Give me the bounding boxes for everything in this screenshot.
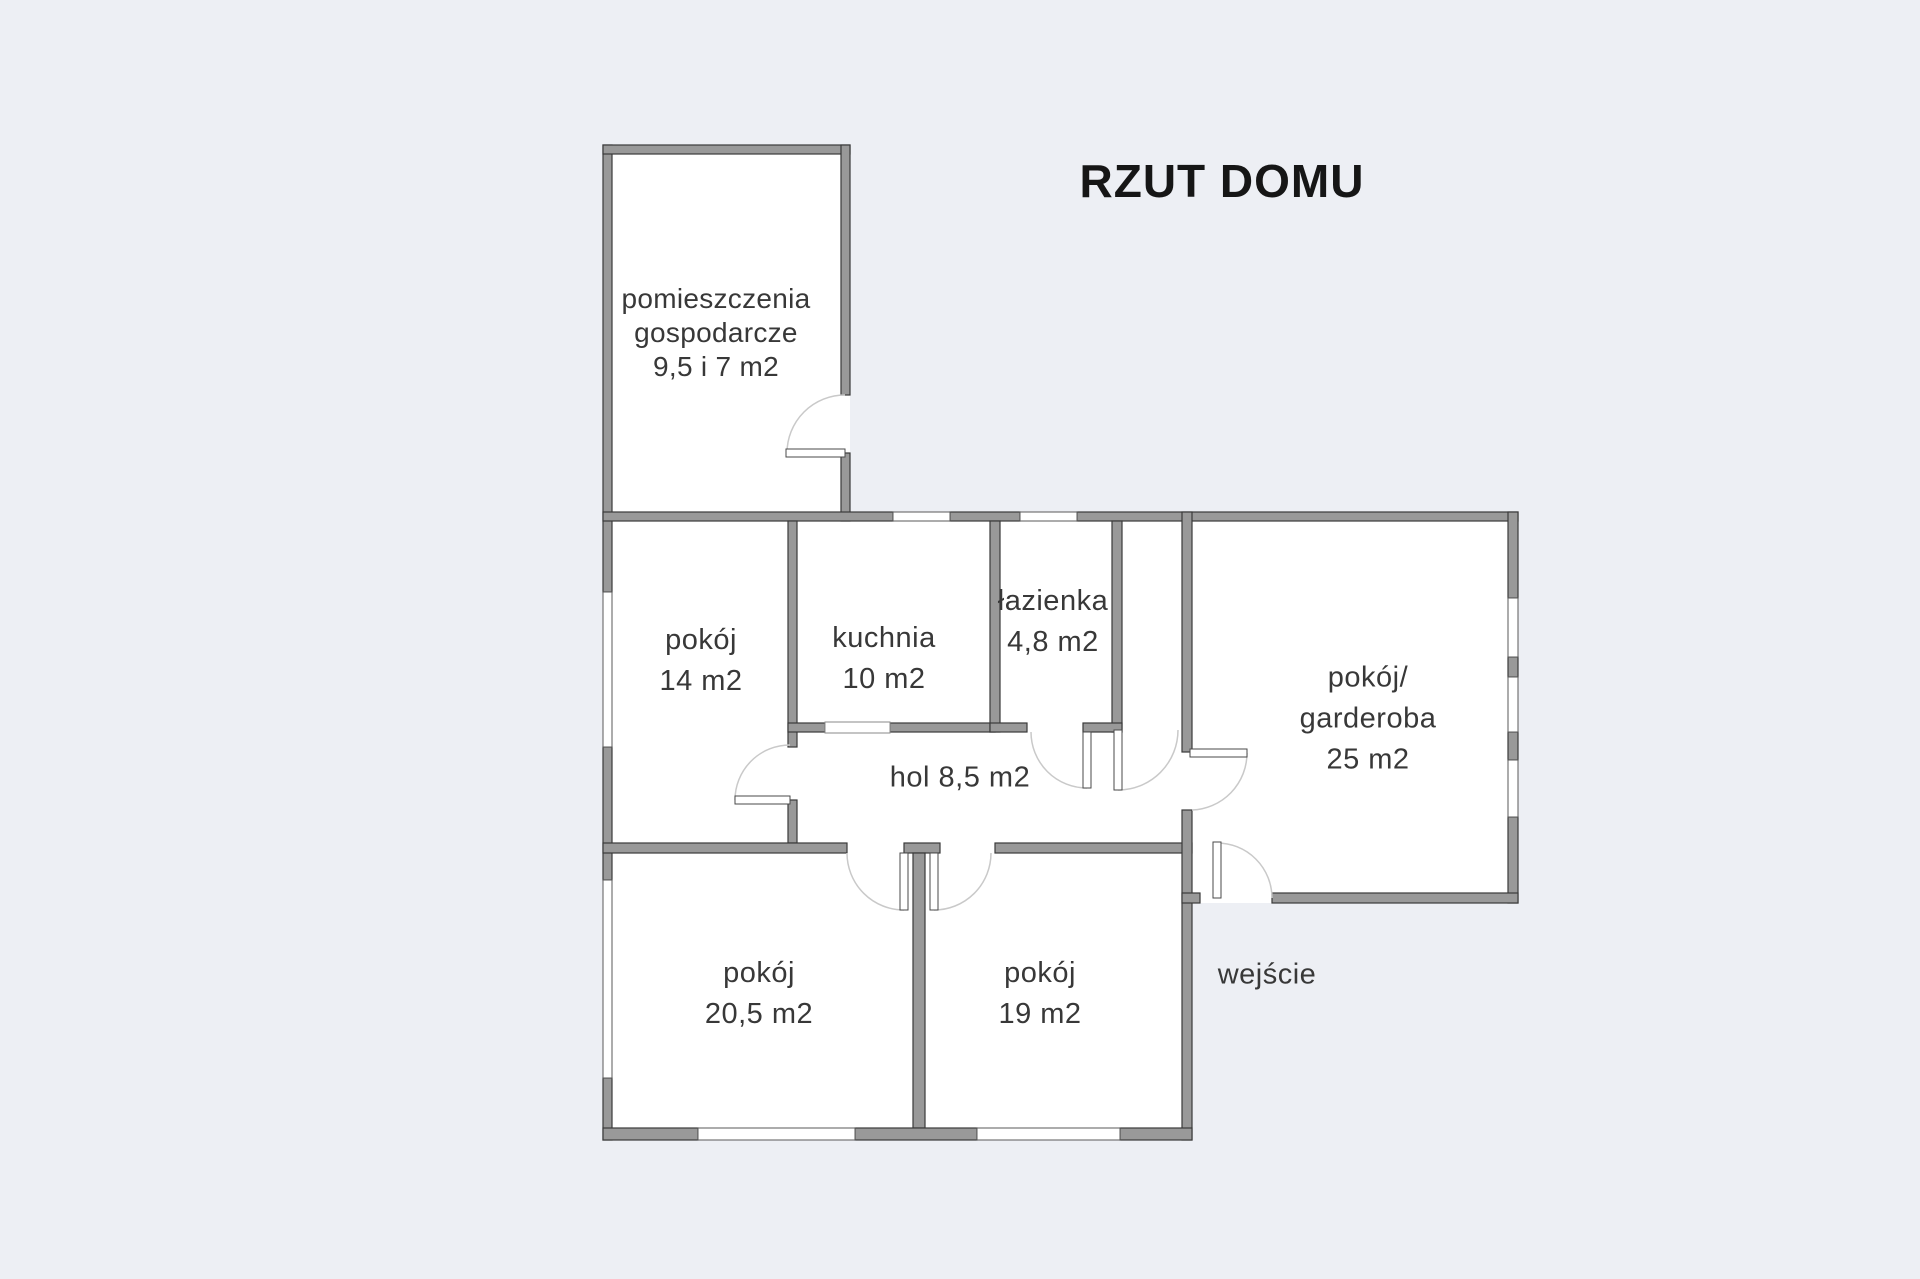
opening-kitchen-hall <box>825 722 890 733</box>
room-label-utility-room: pomieszczenia gospodarcze 9,5 i 7 m2 <box>621 282 810 384</box>
room-label-line: hol 8,5 m2 <box>890 758 1030 799</box>
window-room205-left <box>603 880 612 1078</box>
window-bathroom-top <box>1020 512 1077 521</box>
window-room205-bottom <box>698 1128 855 1140</box>
room-label-line: 20,5 m2 <box>705 994 813 1035</box>
page-title: RZUT DOMU <box>1080 154 1365 208</box>
room-label-line: pomieszczenia <box>621 282 810 316</box>
room-label-room-19: pokój 19 m2 <box>998 953 1081 1035</box>
room-label-line: kuchnia <box>832 618 935 659</box>
room-label-room-14: pokój 14 m2 <box>659 620 742 702</box>
room-label-line: pokój <box>998 953 1081 994</box>
window-wardrobe-right-1 <box>1508 598 1518 657</box>
room-label-line: 25 m2 <box>1300 740 1437 781</box>
room-label-line: 19 m2 <box>998 994 1081 1035</box>
room-label-room-205: pokój 20,5 m2 <box>705 953 813 1035</box>
window-wardrobe-right-2 <box>1508 677 1518 732</box>
window-kitchen-top <box>893 512 950 521</box>
room-label-line: pokój/ <box>1300 658 1437 699</box>
room-label-kitchen: kuchnia 10 m2 <box>832 618 935 700</box>
room-label-line: 9,5 i 7 m2 <box>621 350 810 384</box>
room-label-line: pokój <box>659 620 742 661</box>
room-label-line: pokój <box>705 953 813 994</box>
room-label-entrance: wejście <box>1218 955 1317 996</box>
room-label-line: łazienka <box>998 581 1108 622</box>
room-label-line: garderoba <box>1300 699 1437 740</box>
floor-plan-drawing <box>0 0 1920 1279</box>
room-label-line: 4,8 m2 <box>998 622 1108 663</box>
room-label-hall: hol 8,5 m2 <box>890 758 1030 799</box>
window-room14-left <box>603 592 612 747</box>
room-label-bathroom: łazienka 4,8 m2 <box>998 581 1108 663</box>
room-label-line: gospodarcze <box>621 316 810 350</box>
room-label-line: wejście <box>1218 955 1317 996</box>
window-wardrobe-right-3 <box>1508 760 1518 817</box>
window-room19-bottom <box>977 1128 1120 1140</box>
room-label-line: 14 m2 <box>659 661 742 702</box>
room-label-line: 10 m2 <box>832 659 935 700</box>
room-label-wardrobe-room: pokój/ garderoba 25 m2 <box>1300 658 1437 781</box>
